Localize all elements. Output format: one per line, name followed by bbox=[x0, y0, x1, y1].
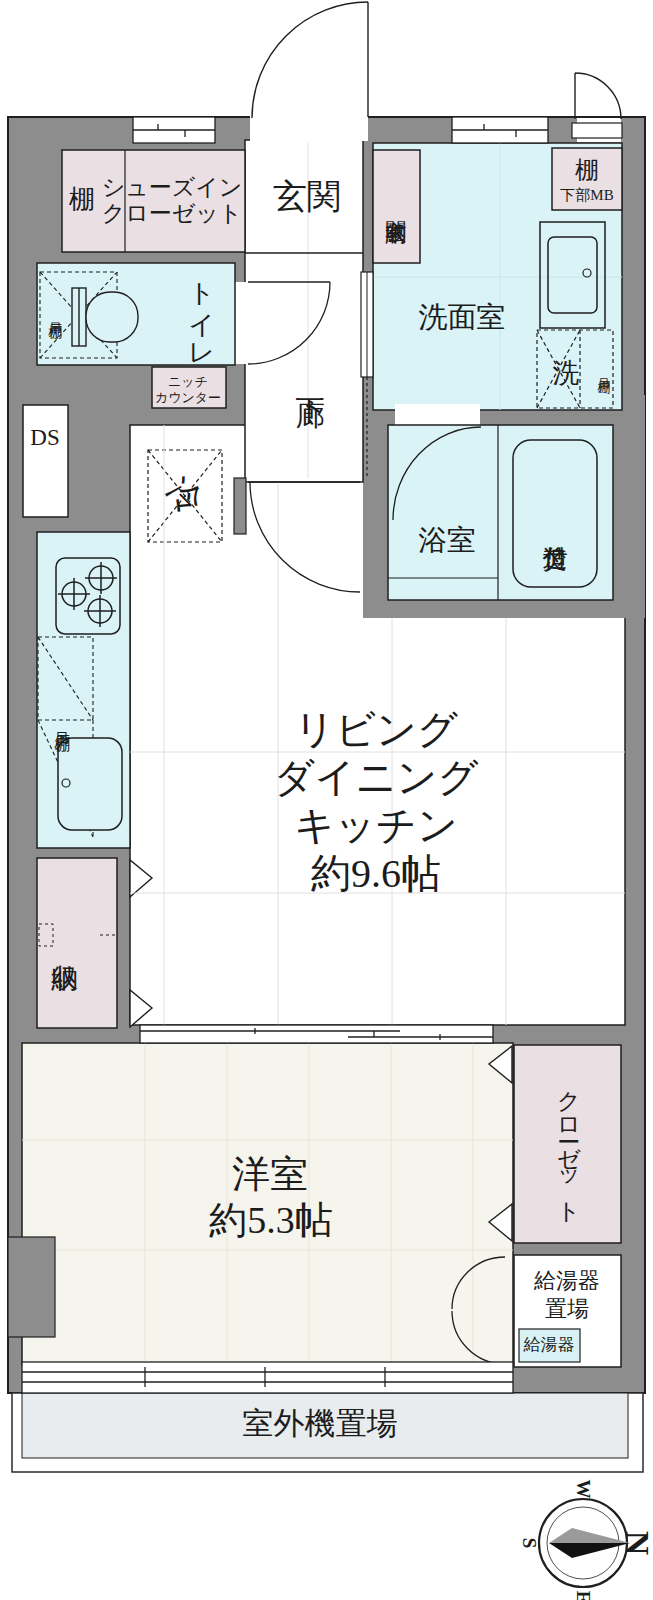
label-western-room: 洋室 bbox=[232, 1153, 308, 1197]
label-genkan-storage: 玄関収納 bbox=[384, 204, 408, 208]
label-toilet: トイレ bbox=[186, 264, 216, 356]
floor-plan: N W S E 玄関 玄関収納 棚 シューズイン クローゼット 棚 下部MB 洗… bbox=[0, 0, 653, 1600]
label-hanging-cabinet-toilet: 吊戸棚 bbox=[47, 312, 63, 315]
window-top-washroom bbox=[452, 117, 548, 143]
box-ds bbox=[23, 405, 68, 517]
compass-w: W bbox=[573, 1480, 594, 1499]
wall-stub bbox=[234, 478, 246, 534]
compass-e: E bbox=[573, 1591, 594, 1600]
label-washroom: 洗面室 bbox=[419, 301, 506, 334]
label-corridor: 廊下 bbox=[293, 375, 326, 377]
kitchen-sink bbox=[58, 738, 122, 830]
entrance-door bbox=[252, 2, 368, 118]
label-hanging-cabinet-laundry: 吊戸棚 bbox=[596, 369, 611, 372]
genkan-doorway bbox=[250, 115, 368, 141]
label-shoes-closet-1: シューズイン bbox=[102, 175, 243, 201]
label-niche-2: カウンター bbox=[155, 391, 221, 406]
label-hanging-cabinet-kitchen: 吊戸棚 bbox=[53, 721, 71, 724]
label-ldk-2: ダイニング bbox=[274, 755, 479, 801]
label-ldk-1: リビング bbox=[294, 707, 458, 753]
compass: N W S E bbox=[519, 1480, 653, 1600]
label-shelf-mb: 棚 bbox=[575, 157, 599, 185]
label-mb-sub: 下部MB bbox=[560, 187, 613, 204]
bath-doorway bbox=[395, 404, 480, 426]
label-bathroom: 浴室 bbox=[418, 524, 476, 557]
compass-s: S bbox=[519, 1538, 540, 1549]
label-ldk-3: キッチン bbox=[294, 803, 458, 849]
label-bathtub: 追焚付 bbox=[540, 526, 569, 529]
label-shelf-shoes: 棚 bbox=[69, 185, 95, 215]
label-outdoor-unit: 室外機置場 bbox=[243, 1406, 398, 1442]
label-heater-space-1: 給湯器 bbox=[534, 1268, 600, 1293]
label-heater-space-2: 置場 bbox=[545, 1296, 589, 1321]
label-laundry: 洗 bbox=[553, 358, 580, 389]
window-top-left bbox=[133, 117, 215, 143]
window-ldk-western bbox=[140, 1025, 493, 1043]
label-heater: 給湯器 bbox=[524, 1335, 575, 1355]
label-ds: DS bbox=[30, 425, 59, 451]
label-western-area: 約5.3帖 bbox=[209, 1199, 333, 1243]
label-ldk-area: 約9.6帖 bbox=[311, 851, 441, 897]
label-genkan: 玄関 bbox=[273, 177, 341, 216]
wall-pillar bbox=[8, 1237, 55, 1337]
meter-box-door bbox=[572, 73, 622, 142]
compass-n: N bbox=[619, 1531, 653, 1556]
bathtub bbox=[513, 440, 597, 587]
label-closet: クローゼット bbox=[555, 1075, 581, 1212]
label-shoes-closet-2: クローゼット bbox=[102, 201, 243, 227]
label-niche-1: ニッチ bbox=[168, 375, 208, 390]
toilet-fixture bbox=[72, 288, 138, 346]
window-south bbox=[22, 1362, 513, 1393]
label-storage: 収納 bbox=[48, 943, 79, 945]
